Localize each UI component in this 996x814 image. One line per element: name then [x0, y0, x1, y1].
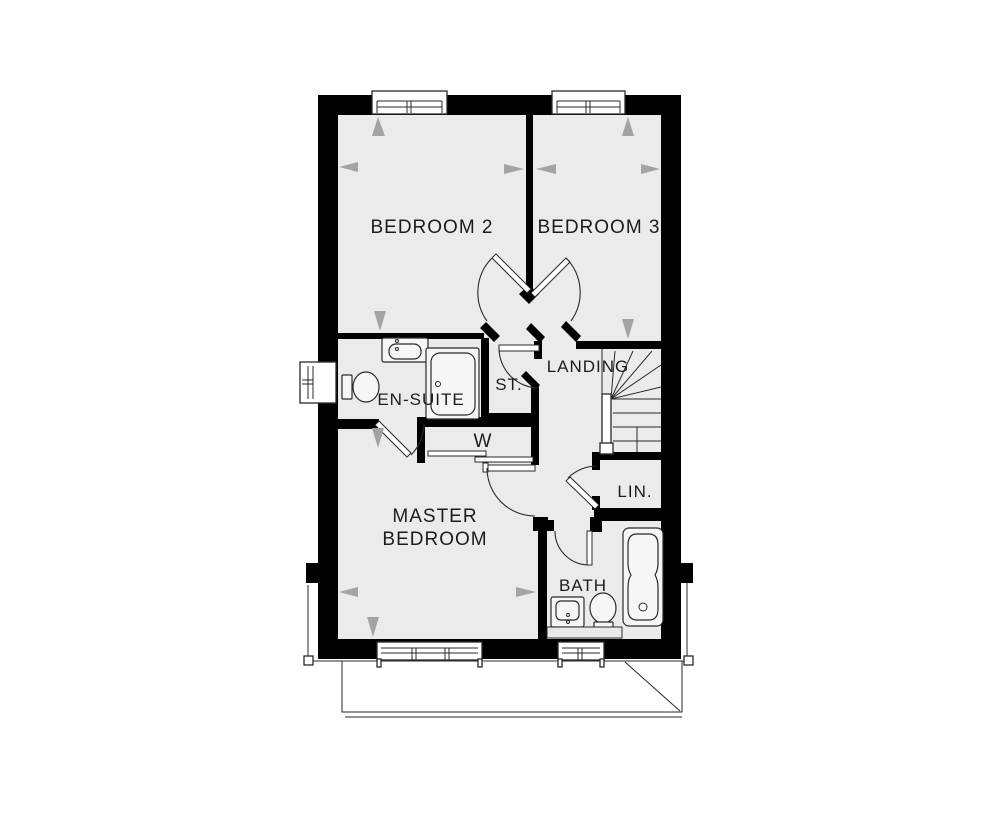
sink-icon — [382, 338, 428, 362]
wall-st-right — [531, 386, 539, 417]
window-master-bedroom — [377, 642, 482, 667]
wall-ensuite-bottom — [318, 419, 379, 429]
stairs-newel-post — [600, 443, 613, 454]
wall-linen-left-top — [592, 452, 600, 470]
eaves-left-marker — [304, 656, 313, 665]
stairs-handrail — [602, 394, 611, 446]
label-master-line1: MASTER — [392, 506, 477, 527]
window-ensuite — [300, 362, 336, 403]
wall-bedroom-divider — [526, 115, 533, 293]
wall-st-left — [481, 338, 489, 421]
wall-bath-left — [538, 531, 547, 639]
canopy-rect — [342, 661, 682, 712]
label-wardrobe: W — [474, 431, 493, 452]
eaves-right-marker — [684, 656, 693, 665]
label-bedroom3: BEDROOM 3 — [537, 217, 660, 238]
floor-plan-drawing: BEDROOM 2 BEDROOM 3 LANDING ST. EN-SUITE… — [0, 0, 996, 814]
wall-master-door-stub — [533, 517, 548, 531]
wall-right — [661, 95, 681, 659]
bathtub-icon — [623, 528, 663, 626]
party-wall-tick-left — [306, 563, 318, 583]
bath-sink-icon — [551, 597, 584, 627]
label-master-line2: BEDROOM — [382, 529, 487, 550]
label-bedroom2: BEDROOM 2 — [370, 217, 493, 238]
label-ensuite: EN-SUITE — [377, 390, 464, 409]
toilet-icon — [342, 372, 379, 402]
label-storage: ST. — [495, 375, 523, 394]
window-bedroom2 — [372, 91, 447, 114]
bath-toilet-icon — [590, 593, 616, 629]
label-linen: LIN. — [617, 482, 652, 501]
party-wall-tick-right — [681, 563, 693, 583]
wall-linen-bottom — [594, 508, 661, 521]
window-bedroom3 — [552, 91, 625, 114]
bath-counter — [547, 627, 622, 638]
wall-landing-stairs — [576, 341, 661, 349]
label-landing: LANDING — [547, 357, 630, 376]
window-bath — [558, 642, 604, 667]
label-bath: BATH — [559, 576, 607, 595]
floor-plan-page: BEDROOM 2 BEDROOM 3 LANDING ST. EN-SUITE… — [0, 0, 996, 814]
wall-bath-frame-post — [547, 520, 554, 531]
canopy-hip-line — [625, 662, 680, 711]
wall-bottom — [318, 639, 681, 659]
